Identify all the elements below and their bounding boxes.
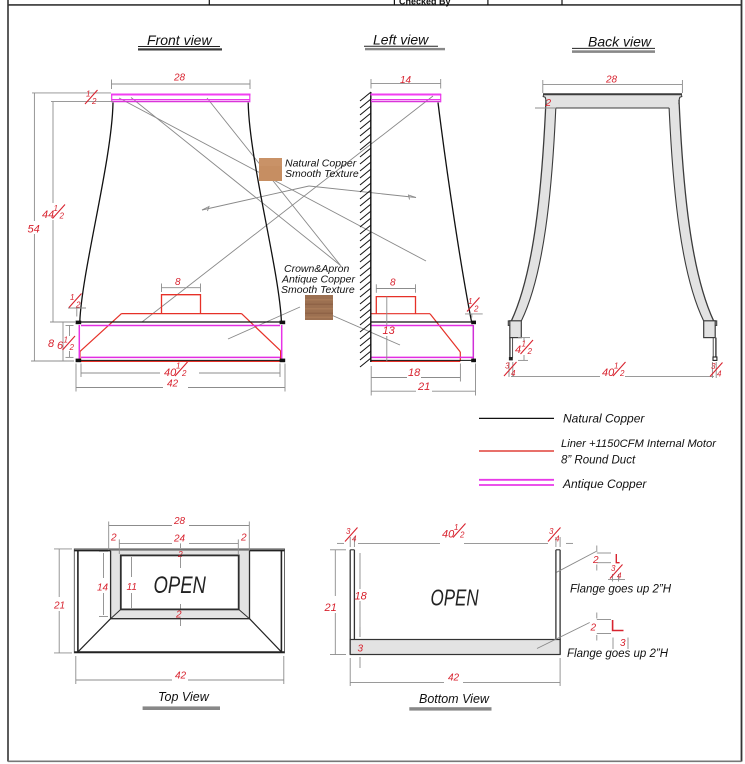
svg-text:4: 4 [515, 344, 521, 356]
svg-text:Bottom View: Bottom View [419, 692, 490, 706]
svg-text:2: 2 [545, 98, 552, 109]
svg-text:24: 24 [173, 534, 186, 545]
svg-text:18: 18 [355, 591, 368, 603]
svg-text:Checked By: Checked By [399, 0, 451, 7]
svg-text:2: 2 [592, 555, 599, 566]
svg-text:OPEN: OPEN [431, 586, 480, 611]
svg-text:Liner +1150CFM Internal Motor: Liner +1150CFM Internal Motor [561, 438, 717, 450]
svg-text:8: 8 [48, 338, 55, 350]
svg-text:Smooth Texture: Smooth Texture [285, 168, 359, 180]
svg-text:21: 21 [53, 601, 65, 612]
svg-text:28: 28 [173, 516, 186, 527]
svg-text:18: 18 [408, 367, 421, 379]
svg-text:Back view: Back view [588, 34, 652, 50]
svg-text:28: 28 [605, 75, 618, 86]
svg-text:8: 8 [390, 278, 396, 289]
svg-text:2: 2 [590, 623, 597, 634]
svg-text:2: 2 [110, 533, 117, 544]
svg-text:14: 14 [400, 75, 412, 86]
svg-text:2: 2 [175, 610, 182, 621]
svg-text:21: 21 [417, 381, 430, 393]
svg-text:21: 21 [324, 602, 337, 614]
svg-text:8: 8 [175, 277, 181, 288]
svg-text:OPEN: OPEN [154, 572, 207, 599]
svg-text:Top View: Top View [158, 690, 210, 704]
svg-text:3: 3 [358, 644, 364, 655]
svg-text:11: 11 [127, 582, 137, 593]
svg-text:2: 2 [177, 549, 183, 559]
svg-text:44: 44 [42, 209, 54, 221]
svg-text:Flange goes up 2”H: Flange goes up 2”H [567, 648, 669, 660]
svg-text:Front view: Front view [147, 32, 212, 48]
svg-text:Flange goes up 2”H: Flange goes up 2”H [570, 584, 672, 596]
svg-text:14: 14 [97, 583, 109, 594]
svg-text:54: 54 [28, 224, 40, 236]
svg-text:42: 42 [167, 379, 179, 390]
svg-text:Natural Copper: Natural Copper [563, 412, 645, 426]
svg-text:Left view: Left view [373, 32, 429, 48]
svg-text:Smooth Texture: Smooth Texture [281, 284, 355, 296]
svg-text:2: 2 [240, 533, 247, 544]
svg-text:8” Round Duct: 8” Round Duct [561, 455, 636, 467]
svg-text:28: 28 [173, 73, 186, 84]
svg-text:Antique Copper: Antique Copper [562, 477, 647, 491]
svg-text:42: 42 [448, 673, 460, 684]
svg-text:13: 13 [383, 325, 396, 337]
svg-text:42: 42 [175, 671, 187, 682]
